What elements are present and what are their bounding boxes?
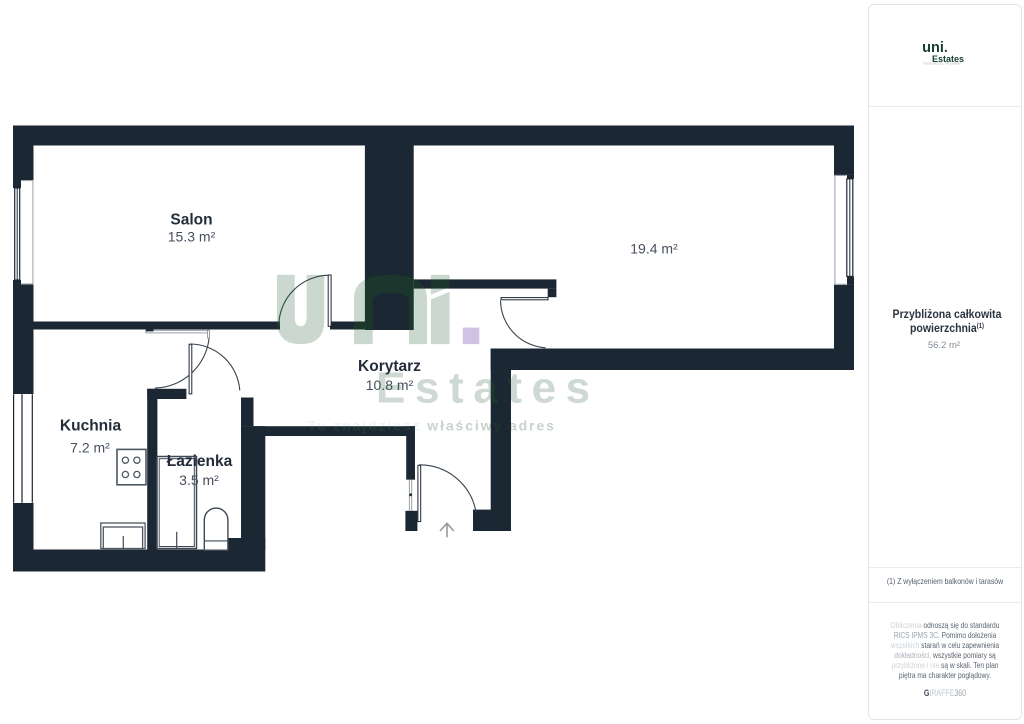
svg-text:Tu znajdziesz właściwy adres: Tu znajdziesz właściwy adres	[308, 418, 556, 434]
svg-text:Estates: Estates	[376, 364, 600, 413]
